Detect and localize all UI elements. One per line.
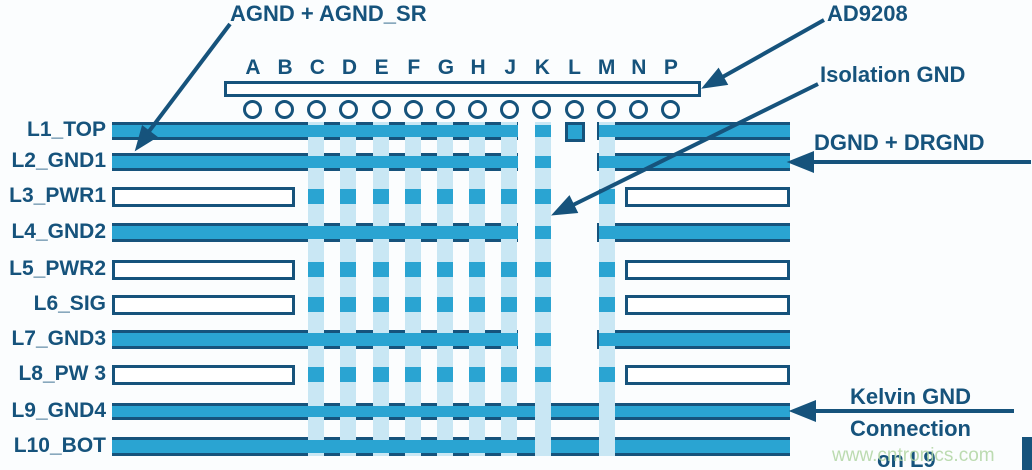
agnd-arrow-line: [147, 24, 230, 134]
chip-arrow-line: [719, 20, 824, 79]
dgnd-arrowhead-icon: [792, 154, 812, 170]
kelvin-annotation-line2: Connection: [850, 416, 971, 442]
kelvin-arrowhead-icon: [794, 403, 814, 419]
pcb-stackup-diagram: AGND + AGND_SR AD9208 Isolation GND DGND…: [0, 0, 1032, 470]
dgnd-annotation: DGND + DRGND: [814, 130, 985, 156]
agnd-arrowhead-icon: [138, 128, 154, 147]
isolation-arrowhead-icon: [556, 199, 575, 213]
isolation-arrow-line: [571, 84, 818, 206]
chip-annotation: AD9208: [827, 1, 908, 27]
agnd-annotation: AGND + AGND_SR: [230, 1, 427, 27]
kelvin-annotation-line1: Kelvin GND: [850, 384, 971, 410]
watermark: www.cntronics.com: [832, 445, 995, 467]
isolation-annotation: Isolation GND: [820, 62, 965, 88]
chip-arrowhead-icon: [706, 71, 725, 86]
